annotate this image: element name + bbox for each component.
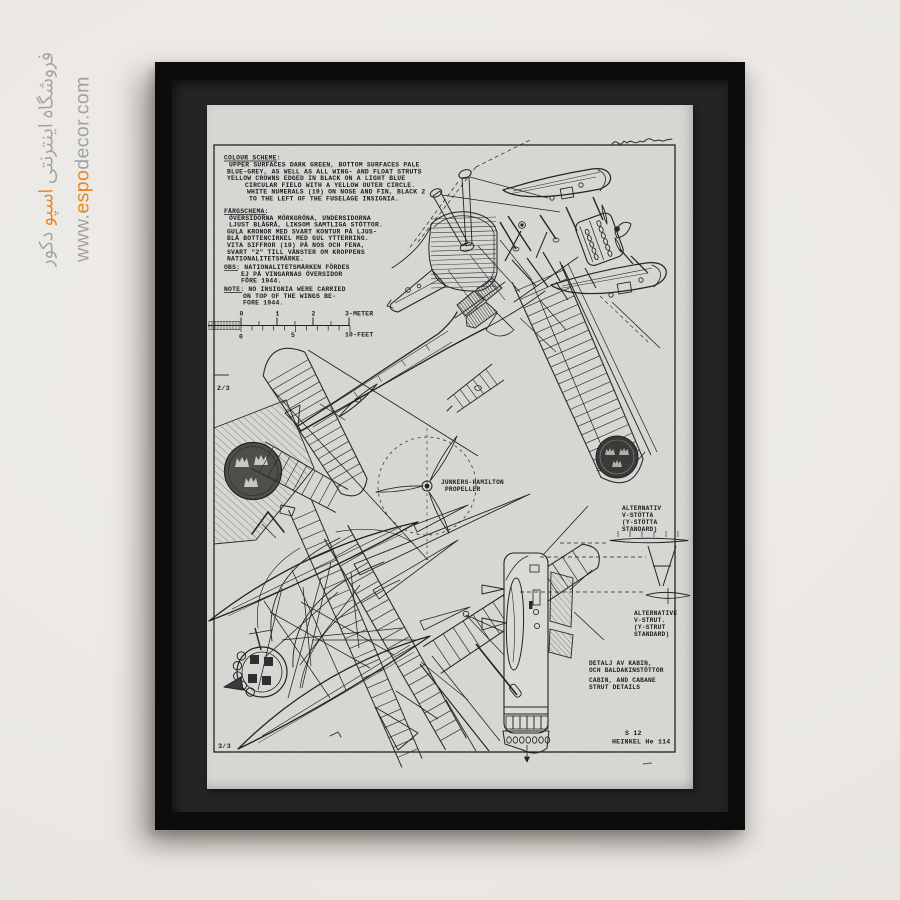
svg-text:0: 0 [240, 311, 244, 318]
svg-text:(Y-STRUT: (Y-STRUT [634, 624, 666, 631]
svg-text:EJ PÅ VINGARNAS ÖVERSIDOR: EJ PÅ VINGARNAS ÖVERSIDOR [241, 270, 342, 278]
svg-text:ALTERNATIV: ALTERNATIV [622, 505, 661, 512]
svg-text:STANDARD): STANDARD) [634, 631, 669, 638]
svg-text:10-FEET: 10-FEET [345, 332, 373, 339]
svg-text:OCH BALDAKINSTÖTTOR: OCH BALDAKINSTÖTTOR [589, 667, 664, 674]
svg-text:0: 0 [239, 334, 243, 341]
svg-text:V-STRUT.: V-STRUT. [634, 617, 665, 624]
svg-text:5: 5 [291, 332, 295, 339]
svg-text:2/3: 2/3 [217, 385, 230, 393]
svg-text:STRUT DETAILS: STRUT DETAILS [589, 684, 640, 691]
svg-text:(Y-STÖTTA: (Y-STÖTTA [622, 519, 657, 526]
svg-text:CABIN, AND CABANE: CABIN, AND CABANE [589, 677, 656, 684]
svg-text:V-STÖTTA: V-STÖTTA [622, 512, 654, 519]
svg-text:2: 2 [312, 311, 316, 318]
svg-text:PROPELLER: PROPELLER [445, 486, 480, 493]
svg-text:LJUST BLÅGRÅ, LIKSOM SAMTLIGA: LJUST BLÅGRÅ, LIKSOM SAMTLIGA STÖTTOR. [229, 221, 383, 229]
svg-text:3/3: 3/3 [218, 743, 231, 751]
svg-text:OBS: NATIONALITETSMÄRKEN FÖRDE: OBS: NATIONALITETSMÄRKEN FÖRDES [224, 263, 350, 271]
svg-text:BLÅ BOTTENCIRKEL MED GUL YTTER: BLÅ BOTTENCIRKEL MED GUL YTTERRING. [227, 234, 369, 242]
svg-text:TO THE LEFT OF THE FUSELAGE IN: TO THE LEFT OF THE FUSELAGE INSIGNIA. [249, 196, 399, 203]
svg-text:FÄRGSCHEMA:: FÄRGSCHEMA: [224, 207, 269, 215]
svg-text:FÖRE 1944.: FÖRE 1944. [241, 277, 282, 285]
svg-text:STANDARD): STANDARD) [622, 526, 657, 533]
svg-text:S 12: S 12 [625, 730, 642, 737]
svg-text:ÖVERSIDORNA MÖRKGRÖNA, UNDERSI: ÖVERSIDORNA MÖRKGRÖNA, UNDERSIDORNA [229, 214, 371, 222]
svg-text:1: 1 [276, 311, 280, 318]
svg-text:JUNKERS-HAMILTON: JUNKERS-HAMILTON [441, 479, 504, 486]
svg-text:ALTERNATIVE: ALTERNATIVE [634, 610, 677, 617]
svg-text:SVART "2" TILL VÄNSTER OM KROP: SVART "2" TILL VÄNSTER OM KROPPENS [227, 248, 365, 256]
svg-text:COLOUR SCHEME:: COLOUR SCHEME: [224, 155, 281, 162]
svg-text:GULA KRONOR MED SVART KONTUR P: GULA KRONOR MED SVART KONTUR PÅ LJUS- [227, 227, 377, 235]
svg-text:VITA SIFFROR (19) PÅ NOS OCH F: VITA SIFFROR (19) PÅ NOS OCH FENA, [227, 241, 365, 249]
svg-text:NATIONALITETSMÄRKE.: NATIONALITETSMÄRKE. [227, 255, 304, 263]
svg-text:FORE 1944.: FORE 1944. [243, 300, 284, 307]
svg-text:3-METER: 3-METER [345, 311, 373, 318]
svg-text:DETALJ AV KABIN,: DETALJ AV KABIN, [589, 660, 652, 667]
svg-text:HEINKEL He 114: HEINKEL He 114 [612, 739, 670, 746]
